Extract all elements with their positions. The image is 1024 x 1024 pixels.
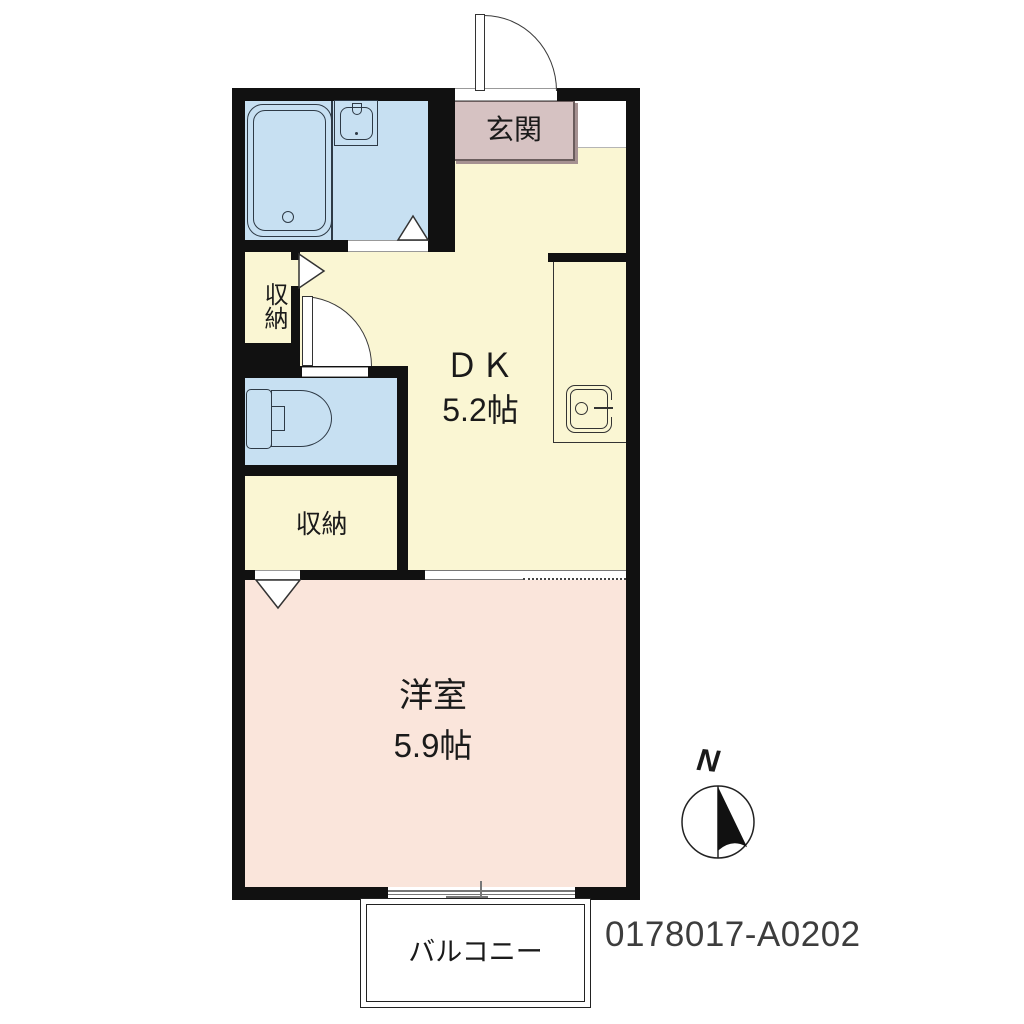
wall-toilet-bottom	[232, 465, 408, 476]
wall-storage-lower-right	[397, 465, 408, 580]
property-id: 0178017-A0202	[605, 916, 855, 955]
wall-toilet-right	[397, 366, 408, 476]
wall-top	[232, 88, 640, 101]
storage-upper-label: 収納	[252, 266, 286, 346]
bathtub-drain-icon	[282, 211, 294, 223]
wall-kitchen-stub	[548, 253, 626, 262]
entrance-door-arc	[484, 15, 557, 91]
balcony: バルコニー	[360, 898, 591, 1008]
kitchen-faucet-icon	[594, 407, 613, 409]
bathroom-divider-line	[331, 101, 333, 240]
toilet-seat-step-icon	[271, 406, 285, 431]
dk-area-label: 5.2帖	[408, 393, 553, 428]
bathroom-door-triangle-icon	[396, 214, 430, 242]
entrance-zone: 玄関	[453, 100, 575, 161]
storage-lower-label: 収納	[245, 510, 398, 539]
wall-western-top-b	[300, 570, 425, 580]
dk-label: ＤＫ	[408, 348, 553, 384]
wall-bathroom-entrance	[428, 101, 455, 252]
western-room-area-label: 5.9帖	[343, 728, 523, 764]
washbasin-drain-icon	[355, 132, 358, 135]
western-room-label: 洋室	[343, 678, 523, 715]
wall-storage-upper-bottom	[232, 343, 300, 378]
floor-plan: 玄関	[0, 0, 1024, 1024]
wall-western-top-a	[232, 570, 255, 580]
entrance-door-leaf	[475, 14, 485, 91]
washbasin-faucet-icon	[352, 103, 362, 115]
kitchen-sink-drain-icon	[575, 402, 588, 415]
storage-upper-door-triangle-icon	[297, 252, 327, 290]
toilet-door-leaf	[302, 296, 313, 366]
entrance-step-area	[575, 101, 626, 148]
toilet-tank-icon	[246, 389, 272, 449]
balcony-inner-border: バルコニー	[366, 904, 585, 1002]
balcony-label: バルコニー	[408, 938, 542, 968]
dk-western-dotted-boundary	[523, 570, 626, 580]
wall-storage-upper-right-b	[291, 286, 300, 343]
western-door-triangle-icon	[254, 578, 302, 610]
wall-left	[232, 88, 245, 900]
entrance-label: 玄関	[486, 115, 542, 146]
toilet-door-opening	[302, 367, 368, 377]
dk-western-opening	[425, 570, 523, 580]
wall-right	[626, 88, 640, 900]
compass-icon	[680, 744, 770, 864]
